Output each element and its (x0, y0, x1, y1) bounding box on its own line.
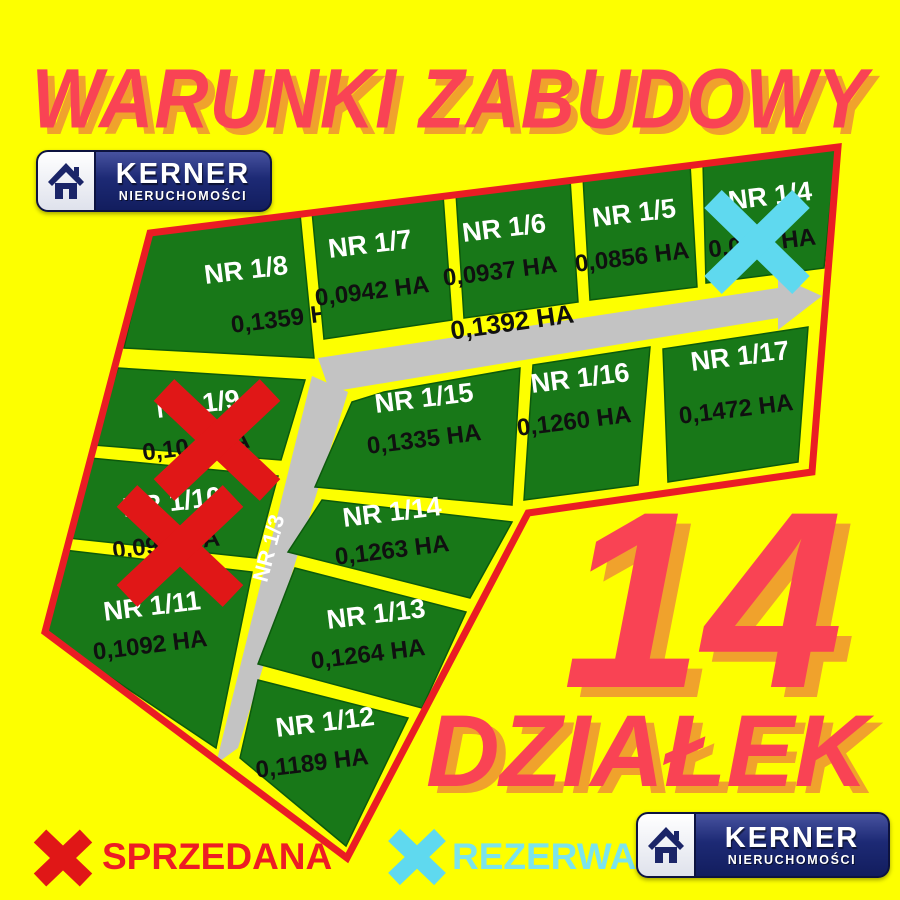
legend-reserved-x-icon (382, 822, 452, 892)
kerner-logo: KERNER NIERUCHOMOŚCI (36, 150, 272, 212)
brand-subtitle: NIERUCHOMOŚCI (728, 853, 856, 868)
brand-name: KERNER (116, 160, 250, 189)
brand-subtitle: NIERUCHOMOŚCI (119, 189, 247, 204)
plot-nr-1-6: NR 1/6 0,0937 HA (441, 179, 578, 318)
poster: WARUNKI ZABUDOWY NR 1/8 0,1359 HA NR 1/7… (0, 0, 900, 900)
plot-count-label: DZIAŁEK (412, 700, 882, 802)
kerner-logo: KERNER NIERUCHOMOŚCI (636, 812, 890, 878)
legend-sold-x-icon (28, 824, 98, 892)
plot-nr-1-7: NR 1/7 0,0942 HA (312, 195, 452, 339)
plot-nr-1-5: NR 1/5 0,0856 HA (573, 164, 697, 300)
plot-nr-1-17: NR 1/17 0,1472 HA (663, 327, 808, 482)
legend-sold-label: SPRZEDANA (102, 836, 332, 878)
plot-count: 14 (548, 498, 858, 705)
brand-name: KERNER (725, 824, 859, 853)
house-icon (38, 152, 96, 210)
house-icon (638, 814, 696, 876)
